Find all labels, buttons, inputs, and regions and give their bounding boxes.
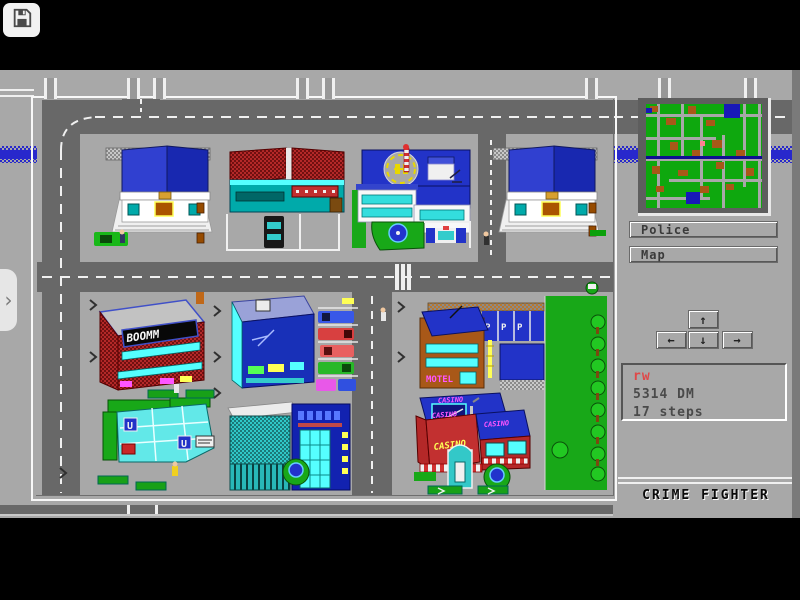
player-steps: 17 steps [633,404,785,422]
svg-text:MOTEL: MOTEL [426,375,454,385]
floppy-icon [11,7,33,33]
player-stats-box: rw 5314 DM 17 steps [621,363,787,421]
svg-text:P: P [517,323,523,333]
arrow-down-icon: ↓ [699,333,707,347]
arrow-left-icon: ← [667,333,675,347]
player-name: rw [633,368,785,386]
game-screen: BOOMMPPPMOTELUUCASINOCASINOCASINOCASINO [0,70,800,518]
police-button-label: Police [641,223,690,237]
game-title: CRIME FIGHTER [618,488,794,503]
player-money: 5314 DM [633,386,785,404]
move-up-button[interactable]: ↑ [688,310,719,329]
move-left-button[interactable]: ← [656,331,687,349]
svg-text:U: U [127,421,133,432]
sidebar-toggle-chevron[interactable]: › [0,269,17,331]
move-down-button[interactable]: ↓ [688,331,719,349]
minimap [638,98,771,216]
arrow-up-icon: ↑ [699,313,707,327]
chevron-right-icon: › [5,288,13,312]
svg-text:P: P [501,323,507,333]
map-button[interactable]: Map [629,246,778,263]
emulator-stage: BOOMMPPPMOTELUUCASINOCASINOCASINOCASINO … [0,0,800,600]
move-right-button[interactable]: → [722,331,753,349]
save-button[interactable] [3,3,40,37]
map-button-label: Map [641,248,666,262]
svg-text:U: U [181,439,187,450]
police-button[interactable]: Police [629,221,778,238]
arrow-right-icon: → [733,333,741,347]
